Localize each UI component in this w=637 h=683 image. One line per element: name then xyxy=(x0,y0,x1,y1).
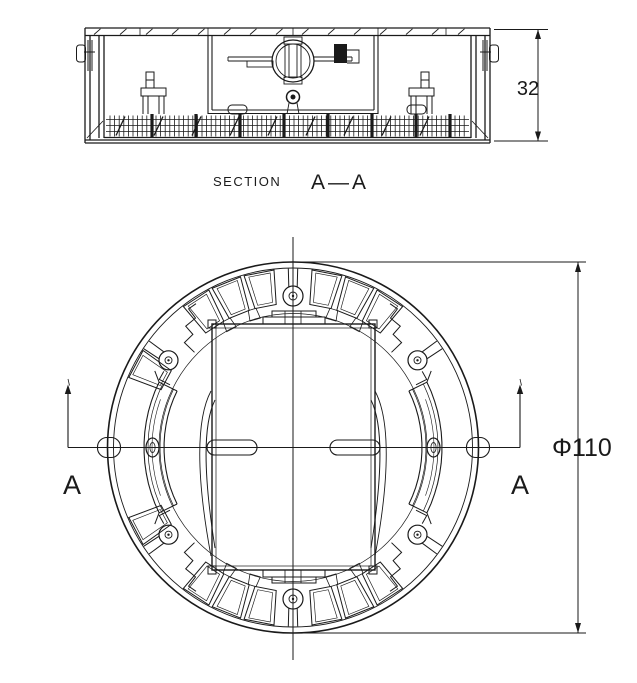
drawing-canvas: 32 SECTION A—A xyxy=(0,0,637,683)
diameter-dim-label: Φ110 xyxy=(552,434,612,462)
connector-block xyxy=(334,44,347,63)
arrow-up-icon xyxy=(575,262,581,272)
cut-arrow-left xyxy=(65,385,71,395)
pcb-plate xyxy=(228,44,359,67)
section-view xyxy=(77,28,499,143)
lens-assembly xyxy=(272,37,314,84)
section-label: SECTION A—A xyxy=(213,171,369,194)
arrow-down-icon xyxy=(535,132,541,142)
plan-view: A A Φ110 xyxy=(63,237,612,660)
section-cut-name: A—A xyxy=(311,171,369,194)
arrow-up-icon xyxy=(535,30,541,40)
centerlines xyxy=(68,237,520,660)
height-dim-label: 32 xyxy=(517,78,539,100)
cut-marker-left: A xyxy=(63,470,81,500)
technical-drawing: 32 SECTION A—A xyxy=(0,0,637,683)
cut-arrow-right xyxy=(517,385,523,395)
dimension-height: 32 xyxy=(494,30,548,142)
cut-marker-right: A xyxy=(511,470,529,500)
arrow-down-icon xyxy=(575,623,581,633)
section-word: SECTION xyxy=(213,174,281,189)
driver-compartment xyxy=(208,36,378,114)
cutting-plane: A A xyxy=(63,379,529,500)
